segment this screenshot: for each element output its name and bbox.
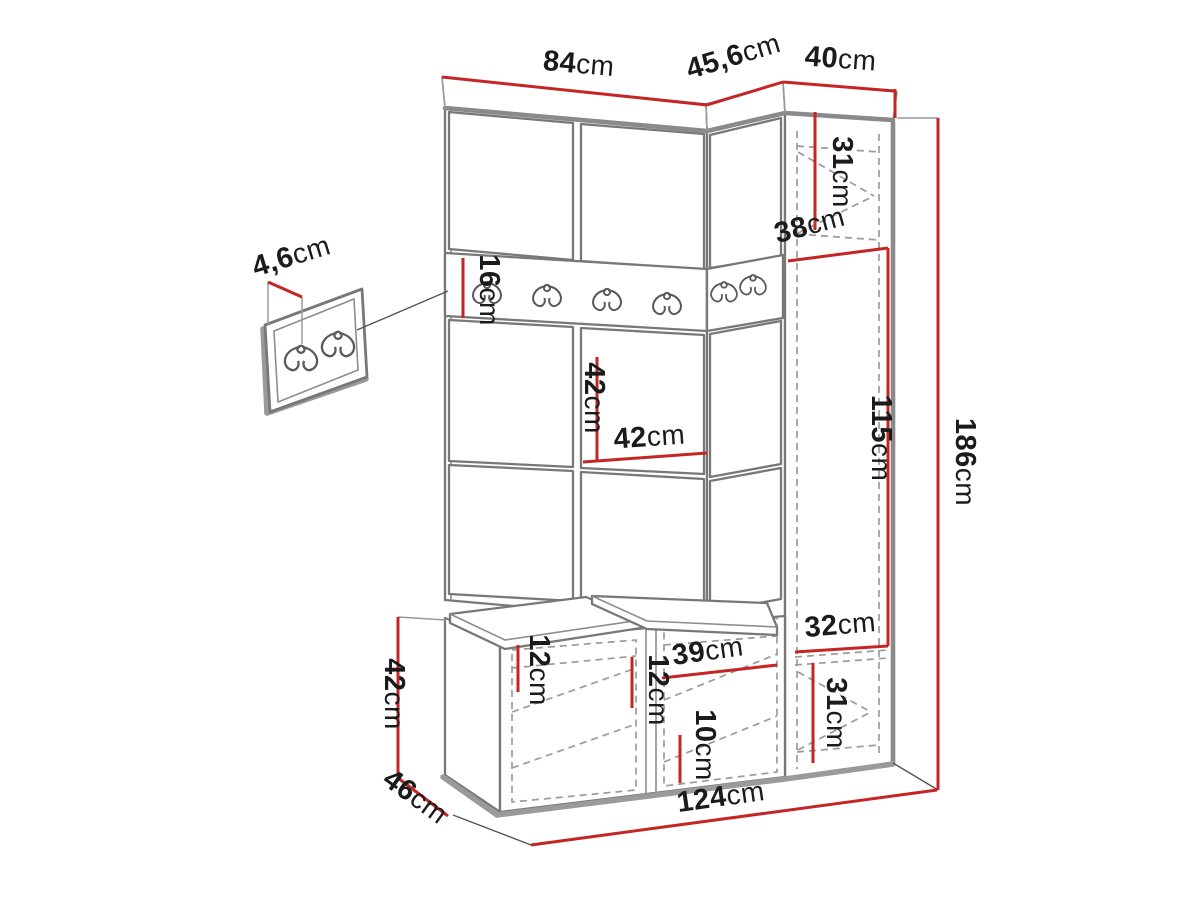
- panel-square: [581, 472, 704, 612]
- dim-cabinet-middle-115: 115cm: [865, 395, 897, 482]
- dim-cabinet-bottom-section-31: 31cm: [820, 677, 852, 749]
- dim-line-40: [783, 82, 895, 91]
- dim-panel-square-height-42: 42cm: [578, 362, 610, 434]
- main-wall-panel: [442, 77, 707, 623]
- panel-square: [449, 465, 573, 601]
- dim-panel-square-width-42: 42cm: [613, 419, 687, 456]
- hook-rail-corner: [707, 255, 783, 331]
- panel-square: [581, 124, 704, 270]
- dim-hook-rail-height-16: 16cm: [473, 254, 505, 326]
- wall-hook-panel: [263, 289, 448, 413]
- dim-bench-gap-left-12: 12cm: [523, 634, 555, 706]
- panel-square: [710, 468, 781, 612]
- dim-total-height-186: 186cm: [949, 418, 981, 506]
- dim-cabinet-top-section-31: 31cm: [826, 136, 858, 208]
- dim-bench-depth-46: 46cm: [377, 763, 454, 831]
- panel-square: [449, 320, 573, 467]
- dim-line-84: [442, 77, 707, 105]
- dim-bench-gap-middle-12: 12cm: [642, 654, 674, 726]
- panel-square: [449, 112, 573, 260]
- dim-line-4-6: [268, 282, 302, 297]
- wall-hook-panel-face: [265, 289, 367, 412]
- dim-line-45-6: [707, 82, 783, 105]
- panel-square: [710, 118, 781, 268]
- dim-top-width-45-6: 45,6cm: [682, 27, 784, 86]
- dim-wall-panel-depth-4-6: 4,6cm: [248, 229, 334, 283]
- leader-line: [357, 291, 448, 330]
- panel-square: [710, 321, 781, 477]
- dim-bench-gap-right-10: 10cm: [689, 709, 721, 781]
- dim-bench-height-42: 42cm: [378, 658, 410, 730]
- dim-top-width-40: 40cm: [804, 41, 878, 78]
- dim-top-width-84: 84cm: [542, 45, 616, 83]
- furniture-dimension-diagram: 84cm 45,6cm 40cm 4,6cm 16cm 31cm 38cm 42…: [0, 0, 1200, 899]
- diagram-canvas: 84cm 45,6cm 40cm 4,6cm 16cm 31cm 38cm 42…: [0, 0, 1200, 899]
